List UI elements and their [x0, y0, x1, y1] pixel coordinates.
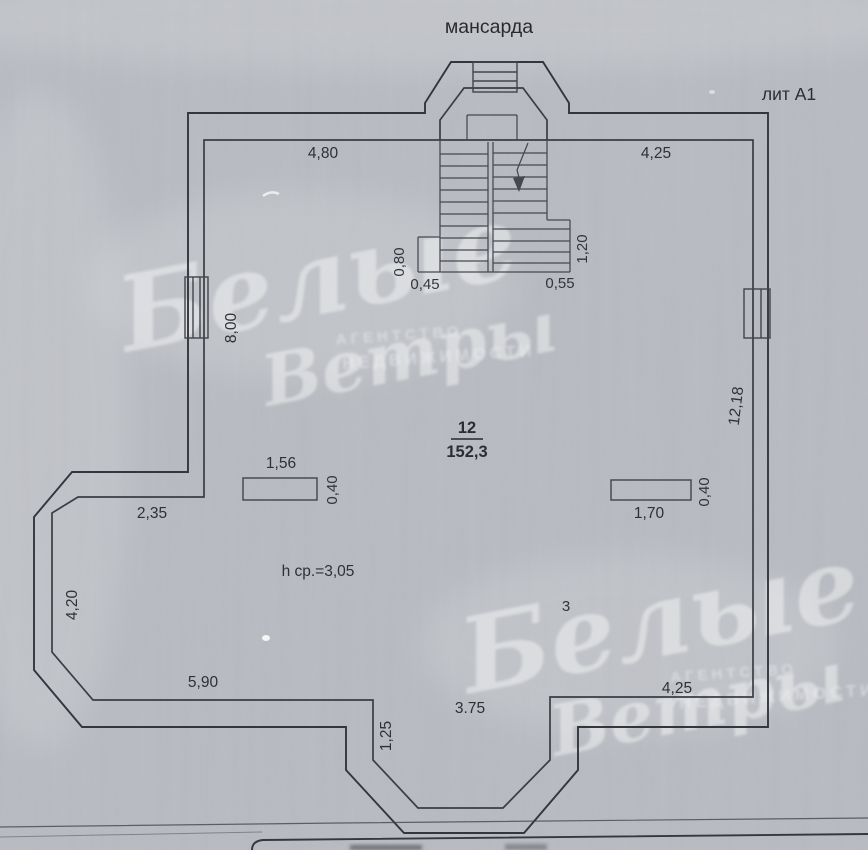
scan-light-top: [0, 0, 868, 70]
cutoff-text-smudge-2: [505, 844, 547, 850]
dim-top-left: 4,80: [308, 145, 339, 162]
dim-bottom-right: 4,25: [662, 680, 692, 697]
dim-stair-left-depth: 0,80: [391, 247, 408, 276]
dim-top-right: 4,25: [641, 145, 671, 162]
building-liter-label: лит А1: [762, 84, 816, 104]
scanned-floorplan-page: Белые Ветры АГЕНТСТВО НЕДВИЖИМОСТИ Белые…: [0, 0, 868, 850]
dim-stair-right-depth: 1,20: [574, 234, 591, 263]
cutoff-text-smudge-1: [350, 845, 422, 850]
dim-bottom-bay-width: 3.75: [455, 700, 485, 717]
dim-left-wall-upper: 8,00: [223, 313, 240, 344]
dim-right-partition-width: 1,70: [634, 505, 665, 522]
scan-speck-2: [709, 90, 715, 94]
dim-right-partition-depth: 0,40: [696, 477, 713, 506]
floorplan-drawing: Белые Ветры АГЕНТСТВО НЕДВИЖИМОСТИ Белые…: [0, 0, 868, 850]
dim-bottom-bay-depth: 1,25: [378, 721, 395, 751]
dim-left-wall-lower: 4,20: [64, 590, 81, 621]
scan-speck-1: [262, 635, 270, 641]
dim-left-partition-depth: 0,40: [324, 475, 341, 504]
dim-bottom-left: 5,90: [188, 674, 219, 691]
dim-left-partition-width: 1,56: [266, 455, 296, 472]
room-number: 12: [458, 419, 476, 437]
dim-stair-right-width: 0,55: [545, 275, 574, 292]
stray-mark: 3: [562, 598, 570, 615]
floor-title: мансарда: [445, 16, 533, 38]
avg-height-note: h ср.=3,05: [282, 563, 355, 580]
room-area: 152,3: [446, 443, 487, 461]
dim-left-step-width: 2,35: [137, 505, 167, 522]
dim-stair-left-width: 0,45: [410, 276, 439, 293]
